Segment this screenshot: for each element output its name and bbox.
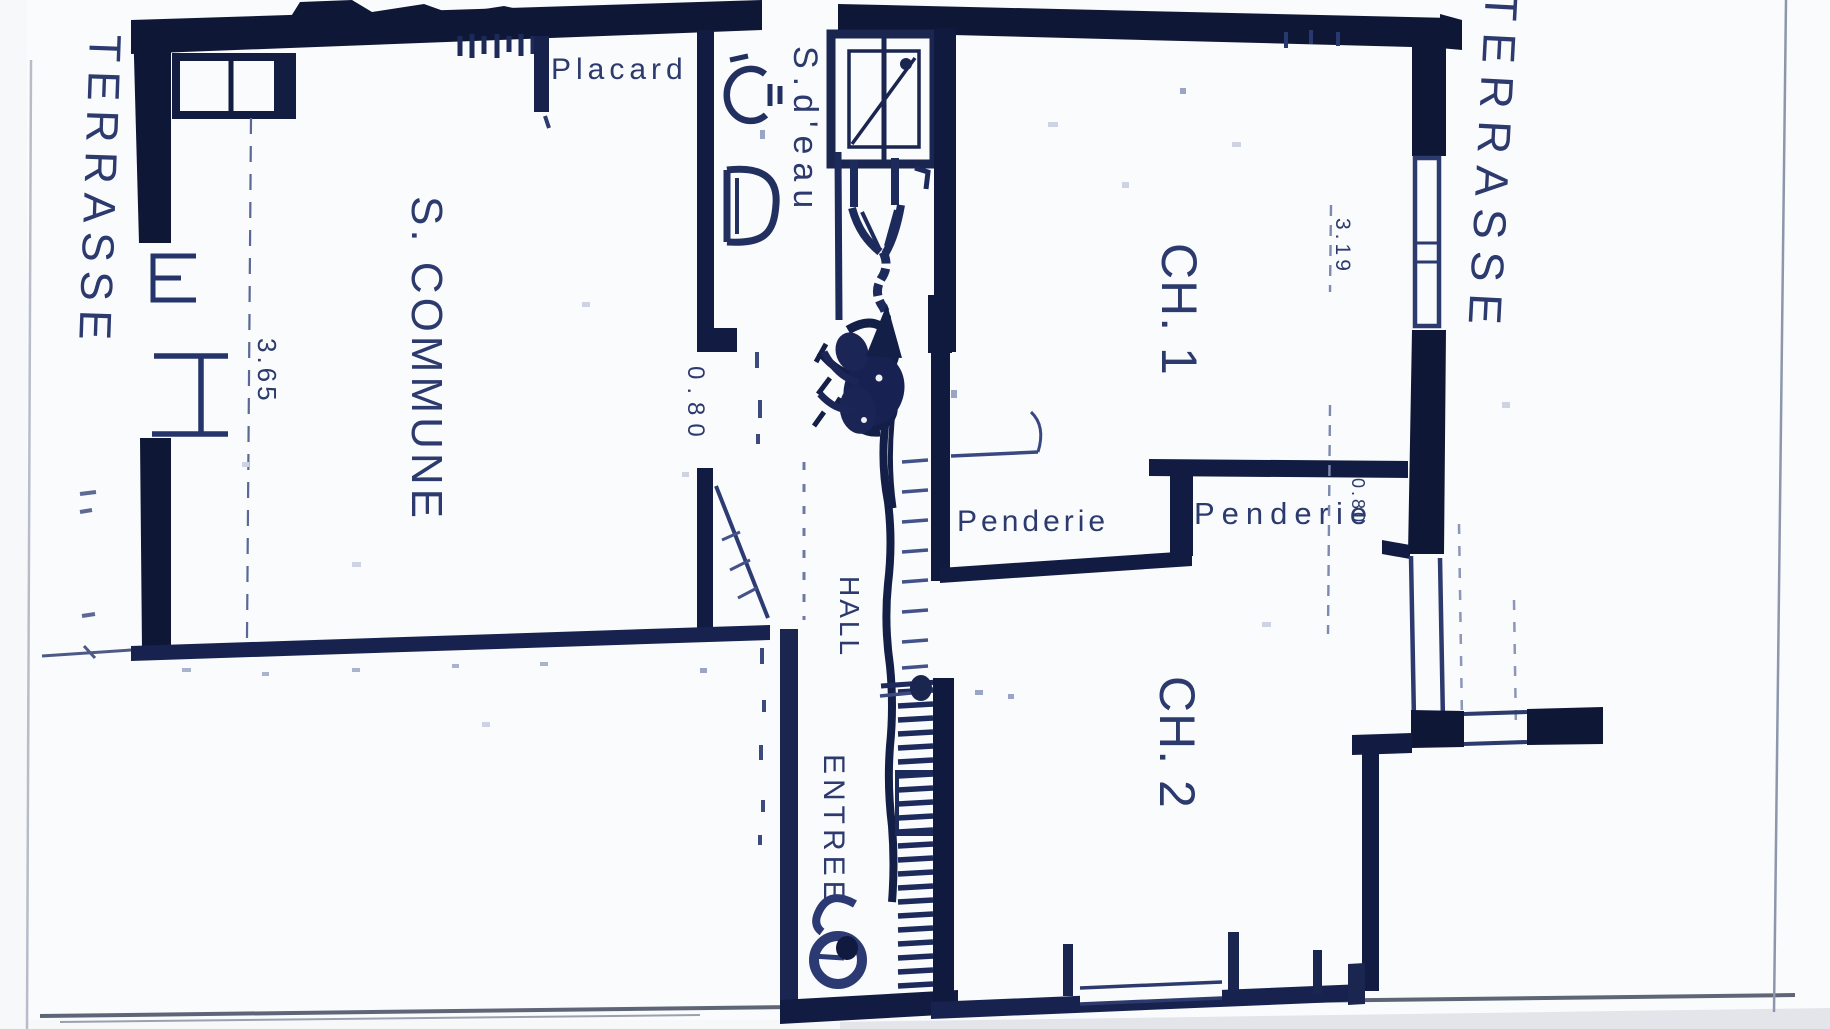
svg-text:Penderie: Penderie bbox=[1194, 496, 1374, 531]
svg-text:Penderie: Penderie bbox=[957, 505, 1109, 538]
svg-text:HALL: HALL bbox=[834, 576, 865, 658]
svg-text:S. COMMUNE: S. COMMUNE bbox=[402, 196, 451, 522]
svg-text:ENTREE: ENTREE bbox=[817, 754, 850, 906]
svg-text:0.80: 0.80 bbox=[682, 366, 709, 445]
svg-text:CH. 1: CH. 1 bbox=[1151, 243, 1207, 376]
svg-text:3.19: 3.19 bbox=[1331, 218, 1354, 275]
svg-text:Placard: Placard bbox=[551, 53, 688, 86]
svg-text:S.d'eau: S.d'eau bbox=[786, 46, 824, 216]
svg-text:CH. 2: CH. 2 bbox=[1149, 676, 1205, 809]
svg-text:3.65: 3.65 bbox=[252, 338, 282, 405]
svg-text:0.80: 0.80 bbox=[1348, 478, 1368, 525]
